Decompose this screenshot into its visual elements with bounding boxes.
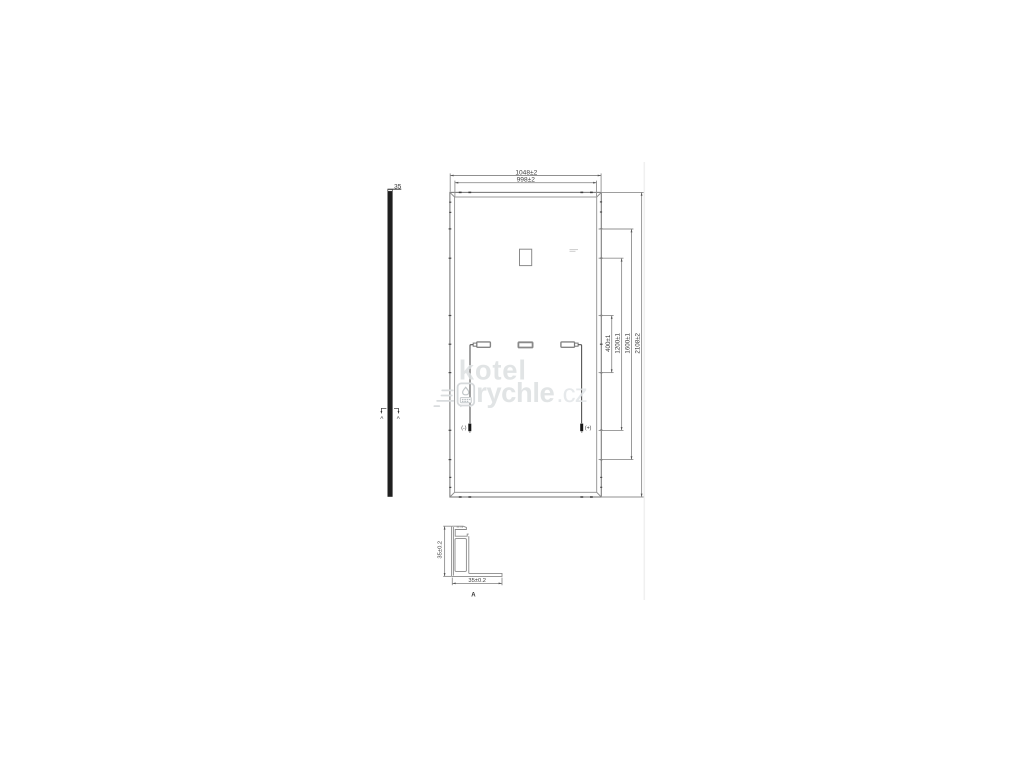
svg-text:35: 35: [394, 184, 402, 191]
svg-text:rychle: rychle: [476, 377, 554, 408]
svg-text:(-): (-): [461, 425, 466, 431]
svg-text:998±2: 998±2: [517, 177, 536, 184]
svg-text:(+): (+): [585, 425, 592, 431]
svg-text:1048±2: 1048±2: [515, 169, 537, 176]
svg-text:35±0.2: 35±0.2: [437, 541, 443, 559]
svg-text:.cz: .cz: [556, 378, 587, 408]
svg-text:1600±1: 1600±1: [625, 332, 632, 353]
svg-text:400±1: 400±1: [605, 334, 612, 352]
svg-text:1200±1: 1200±1: [615, 332, 622, 353]
svg-text:A: A: [471, 592, 476, 598]
svg-text:2108±2: 2108±2: [635, 332, 642, 353]
svg-text:35±0.2: 35±0.2: [468, 578, 486, 584]
